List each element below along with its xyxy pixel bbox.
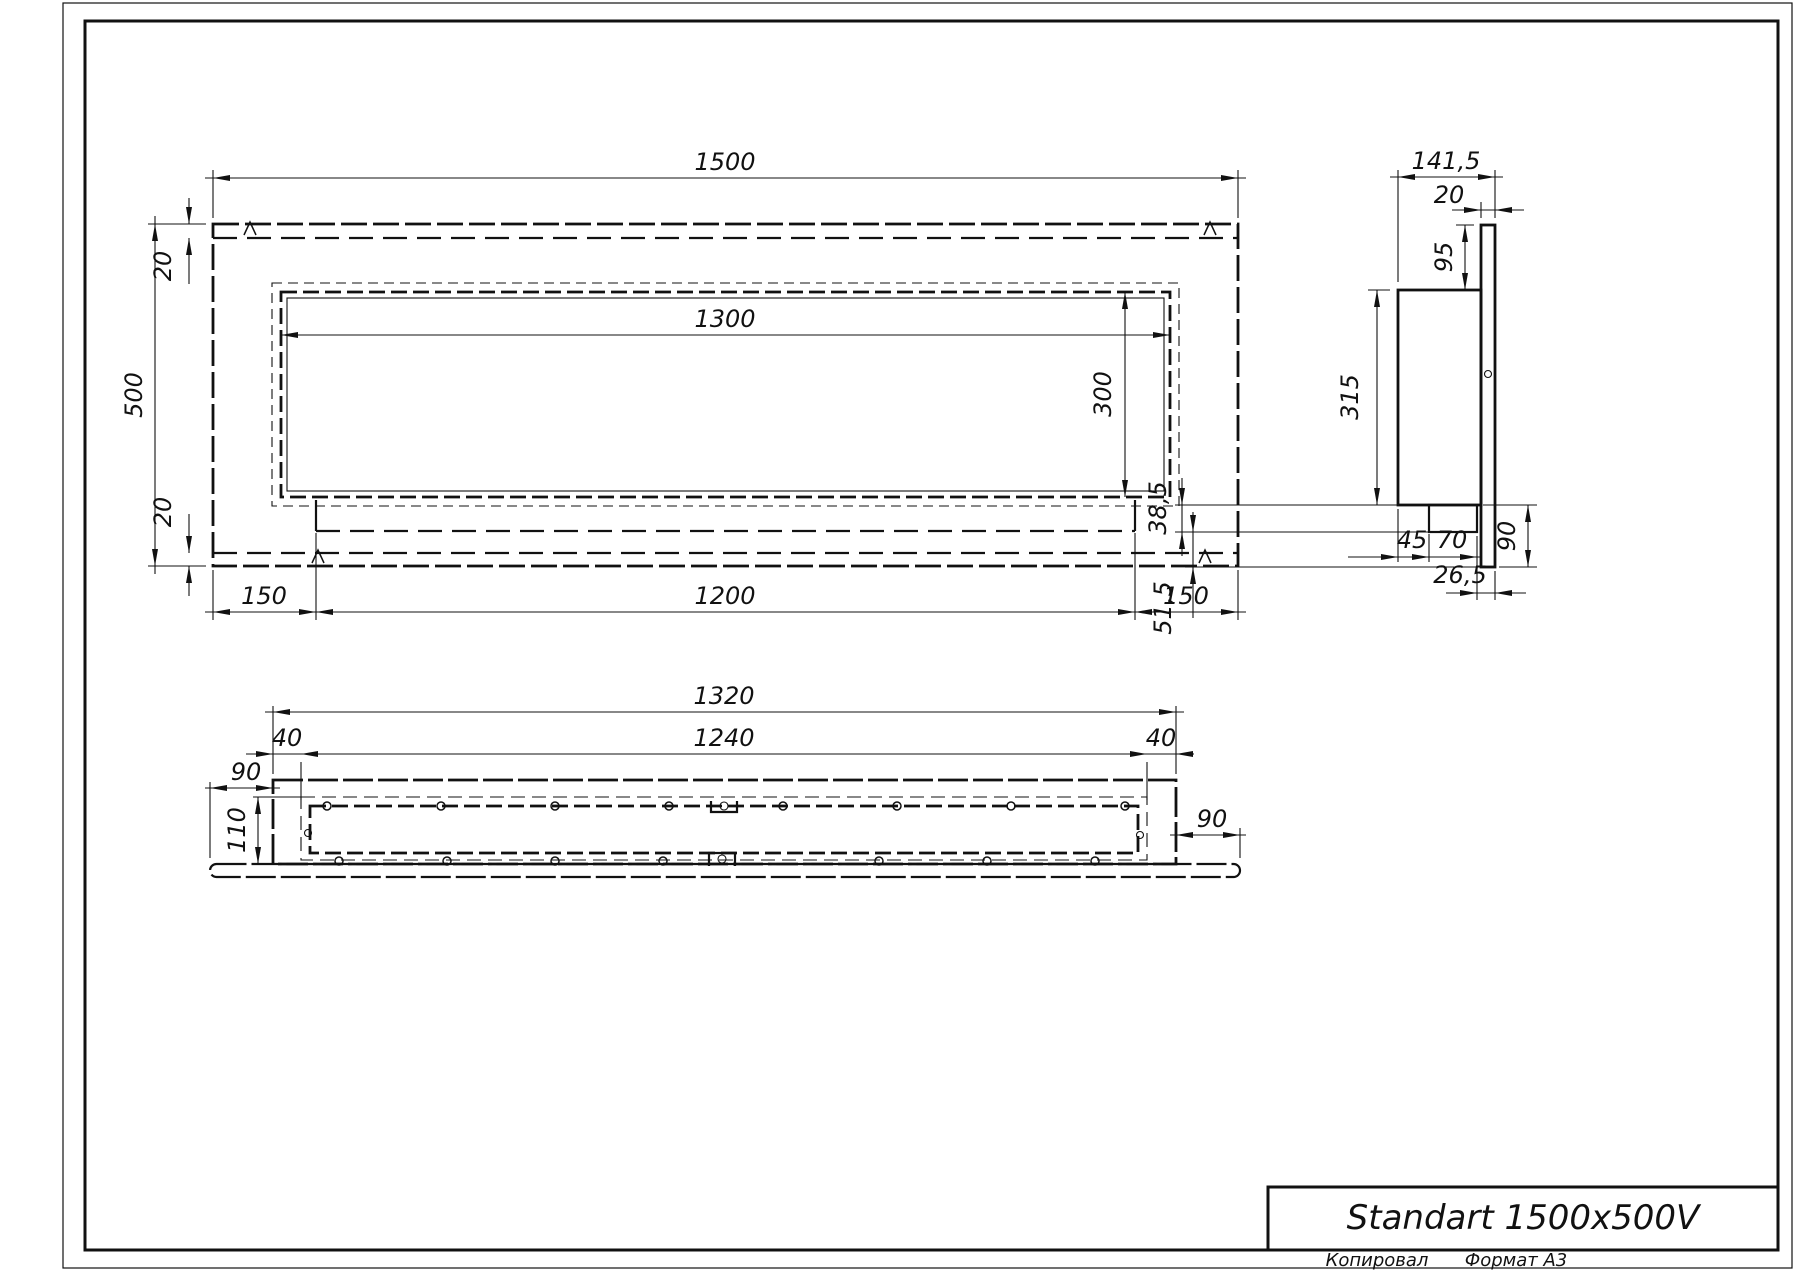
dim-label: 110 [223, 807, 251, 853]
dim-side-flange-thickness: 20 [1434, 181, 1524, 218]
dim-label: 1300 [694, 305, 755, 333]
front-view: 1500 500 20 20 [120, 148, 1246, 620]
dim-label: 51,5 [1149, 581, 1177, 634]
front-outer-frame [213, 224, 1238, 566]
paper-border [63, 3, 1792, 1268]
title-block: Standart 1500x500V [1268, 1187, 1778, 1250]
dim-side-body-height: 315 [1336, 290, 1390, 505]
dim-side-top-inset: 95 [1430, 225, 1474, 290]
dim-side-tray-chain: 45 70 [1348, 509, 1482, 562]
bottom-body [273, 780, 1176, 864]
hole [1137, 832, 1144, 839]
dim-label: 141,5 [1412, 147, 1481, 175]
sheet-frame [63, 3, 1792, 1268]
dim-label: 90 [1197, 805, 1228, 833]
side-view: 141,5 20 95 315 [1144, 147, 1537, 635]
drawing-border [85, 21, 1778, 1250]
dim-label: 40 [272, 724, 303, 752]
hole [718, 855, 726, 863]
dim-front-opening-width: 1300 [281, 305, 1170, 338]
bottom-flange [210, 864, 1240, 877]
copied-label: Копировал [1326, 1250, 1429, 1271]
dim-label: 1200 [694, 582, 755, 610]
dim-front-opening-height: 300 [1089, 292, 1128, 497]
dim-label: 500 [120, 372, 148, 418]
dim-label: 90 [231, 758, 262, 786]
dim-label: 26,5 [1433, 561, 1486, 589]
dim-label: 95 [1430, 242, 1458, 273]
dim-bottom-channel-chain: 40 1240 40 [246, 724, 1194, 800]
side-front-plate [1481, 225, 1495, 567]
dim-label: 90 [1493, 521, 1521, 552]
dim-label: 315 [1336, 374, 1364, 420]
bottom-view: 1320 40 1240 40 90 9 [205, 682, 1246, 877]
dim-label: 40 [1146, 724, 1177, 752]
format-label: Формат А3 [1465, 1250, 1568, 1271]
dim-label: 300 [1089, 371, 1117, 417]
drawing-sheet: 1500 500 20 20 [0, 0, 1800, 1273]
dim-front-slot-chain: 150 1200 150 [205, 533, 1246, 620]
dim-label: 150 [241, 582, 287, 610]
dim-label: 1240 [693, 724, 754, 752]
dim-side-flange-drop: 90 [1483, 505, 1537, 567]
dim-label: 45 [1397, 526, 1428, 554]
dim-label: 70 [1437, 526, 1468, 554]
dim-label: 20 [1434, 181, 1465, 209]
drawing-title: Standart 1500x500V [1347, 1198, 1702, 1238]
dim-label: 1500 [694, 148, 755, 176]
technical-drawing: 1500 500 20 20 [0, 0, 1800, 1273]
side-body [1398, 290, 1481, 505]
dim-label: 1320 [693, 682, 754, 710]
side-hole [1485, 371, 1492, 378]
dim-label: 20 [149, 251, 177, 282]
dim-bottom-depth: 110 [223, 797, 303, 864]
dim-label: 38,5 [1144, 481, 1172, 534]
dim-front-width: 1500 [205, 148, 1246, 218]
dim-bottom-right-overhang: 90 [1170, 805, 1246, 858]
dim-label: 20 [149, 497, 177, 528]
